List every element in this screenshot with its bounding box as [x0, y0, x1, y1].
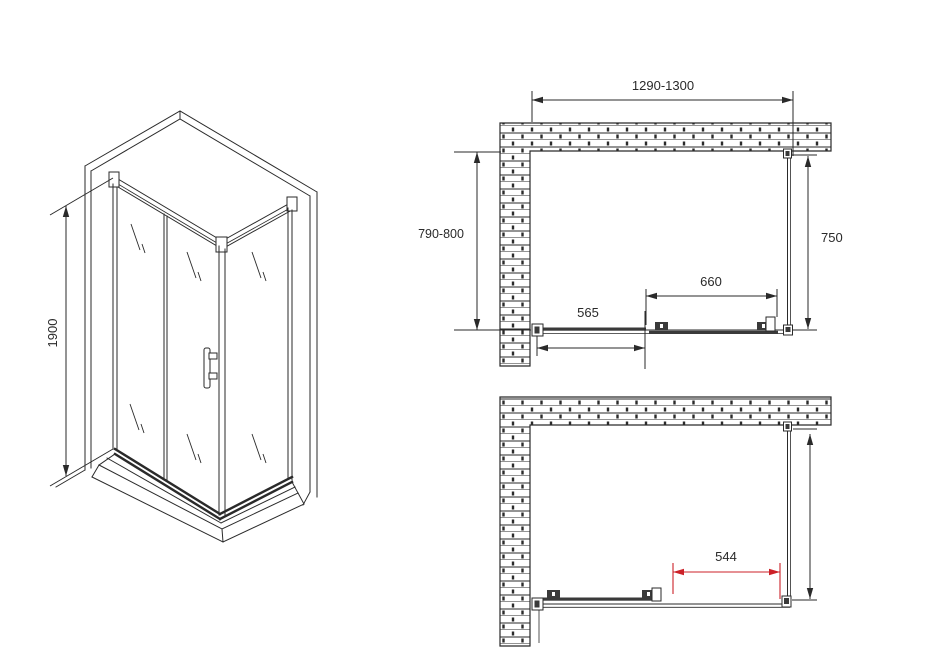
side-panel-arrow [792, 429, 817, 600]
fixed-glass-plan [543, 328, 646, 331]
iso-frame [109, 172, 297, 517]
technical-drawing-sheet: 1900 [0, 0, 940, 665]
height-dimension: 1900 [45, 178, 113, 486]
shower-tray [92, 449, 304, 542]
shower-enclosure-drawing: 1900 [0, 0, 940, 665]
iso-view: 1900 [45, 111, 317, 542]
side-panel-dimension: 750 [792, 155, 843, 330]
height-dimension-label: 1900 [45, 319, 60, 348]
glass-hatch-marks [130, 224, 266, 463]
opening-dimension-label: 544 [715, 549, 737, 564]
iso-corner-walls [56, 111, 317, 505]
door-dimension: 660 [646, 274, 777, 325]
door-handle [204, 348, 217, 388]
opening-dimension: 544 [673, 549, 780, 599]
sliding-door-plan [649, 331, 778, 334]
depth-dimension-label: 790-800 [418, 227, 464, 241]
plan-view-top: 1290-1300 790-800 750 660 [418, 78, 843, 369]
fixed-panel-dimension-label: 565 [577, 305, 599, 320]
door-bracket-open [652, 588, 661, 601]
width-dimension-label: 1290-1300 [632, 78, 694, 93]
plan-view-bottom: 544 [500, 397, 831, 646]
side-panel-plan [784, 149, 792, 330]
door-bracket [766, 317, 775, 331]
brick-wall-bottom-plan [500, 397, 831, 646]
door-track-plan-open [532, 588, 791, 643]
door-track-plan [532, 317, 793, 336]
door-dimension-label: 660 [700, 274, 722, 289]
fixed-panel-dimension: 565 [537, 305, 645, 369]
side-panel-plan-open [784, 422, 792, 604]
side-panel-dimension-label: 750 [821, 230, 843, 245]
